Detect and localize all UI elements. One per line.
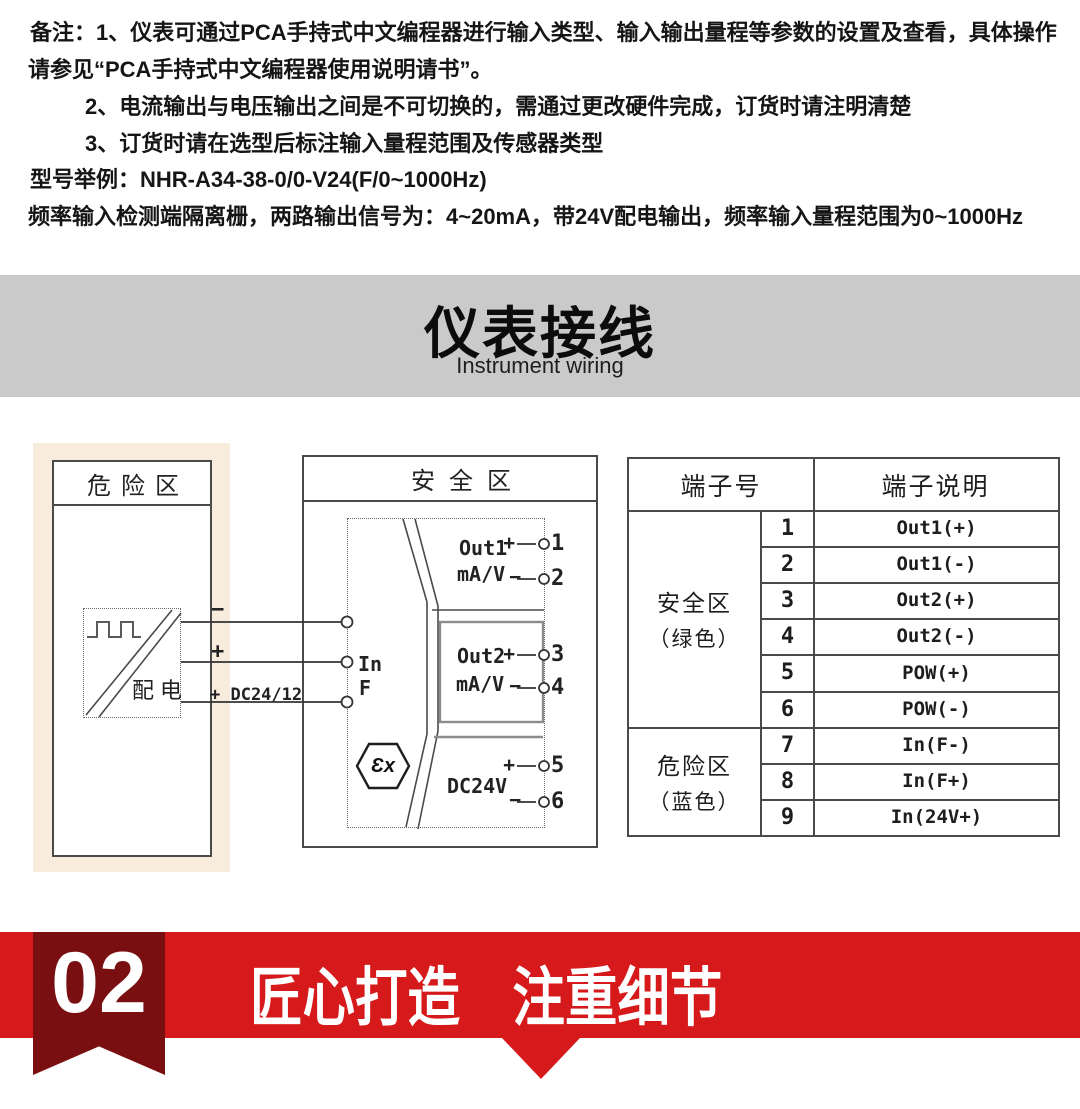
terminal-1-label: 1 (551, 533, 564, 555)
table-row-desc: POW(-) (815, 691, 1058, 727)
note-line-6-description: 频率输入检测端隔离栅，两路输出信号为：4~20mA，带24V配电输出，频率输入量… (28, 206, 1023, 228)
wire-power-label: + DC24/12V (210, 687, 312, 704)
out1-unit-label: mA/V (457, 564, 505, 584)
table-row-desc: POW(+) (815, 654, 1058, 691)
table-row-num: 9 (762, 799, 813, 835)
table-row-num: 1 (762, 510, 813, 546)
out1-label: Out1 (459, 538, 507, 558)
out1-plus-sign: + (503, 533, 515, 554)
out2-label: Out2 (457, 646, 505, 666)
product-page: 备注：1、仪表可通过PCA手持式中文编程器进行输入类型、输入输出量程等参数的设置… (0, 0, 1080, 1109)
hazard-zone-title: 危险区 (54, 462, 210, 506)
dc24v-label: DC24V (447, 776, 507, 796)
dc24v-minus-sign: − (509, 790, 521, 811)
group-hazard-line1: 危险区 (657, 747, 732, 781)
terminal-5-label: 5 (551, 755, 564, 777)
section-number: 02 (51, 940, 147, 1075)
safe-zone-title: 安全区 (304, 457, 596, 502)
terminal-table: 端子号 端子说明 安全区 （绿色） 危险区 （蓝色） 1 2 3 4 5 6 7… (627, 457, 1060, 837)
out2-plus-sign: + (503, 644, 515, 665)
table-header-terminal-desc: 端子说明 (813, 459, 1058, 510)
footer-slogan: 匠心打造 注重细节 (250, 947, 722, 1039)
section-banner: 仪表接线 Instrument wiring (0, 275, 1080, 397)
table-row-num: 6 (762, 691, 813, 727)
table-row-num: 8 (762, 763, 813, 799)
note-line-2: 请参见“PCA手持式中文编程器使用说明请书”。 (28, 59, 492, 81)
table-row-desc: Out2(+) (815, 582, 1058, 618)
ex-certification-label: Ɛx (361, 756, 405, 776)
table-row-desc: Out1(+) (815, 510, 1058, 546)
note-line-1: 备注：1、仪表可通过PCA手持式中文编程器进行输入类型、输入输出量程等参数的设置… (30, 22, 1057, 44)
out2-unit-label: mA/V (456, 674, 504, 694)
table-row-num: 3 (762, 582, 813, 618)
table-row-num: 7 (762, 727, 813, 763)
power-distribution-label: 配电 (132, 680, 188, 702)
note-line-4: 3、订货时请在选型后标注输入量程范围及传感器类型 (85, 133, 603, 155)
table-row-desc: Out2(-) (815, 618, 1058, 654)
table-row-desc: In(24V+) (815, 799, 1058, 835)
section-number-ribbon: 02 (33, 932, 165, 1075)
terminal-6-label: 6 (551, 791, 564, 813)
table-row-num: 2 (762, 546, 813, 582)
table-row-desc: In(F-) (815, 727, 1058, 763)
out1-minus-sign: − (509, 567, 521, 588)
group-safe-line2: （绿色） (649, 623, 741, 653)
out2-minus-sign: − (509, 676, 521, 697)
note-line-5-model-example: 型号举例：NHR-A34-38-0/0-V24(F/0~1000Hz) (30, 169, 487, 191)
terminal-4-label: 4 (551, 677, 564, 699)
wire-minus-label: − (211, 598, 224, 621)
table-row-num: 4 (762, 618, 813, 654)
section-subtitle: Instrument wiring (0, 353, 1080, 379)
table-row-desc: Out1(-) (815, 546, 1058, 582)
input-label: In (358, 654, 382, 674)
table-header-terminal-no: 端子号 (629, 459, 813, 510)
group-hazard-line2: （蓝色） (649, 786, 741, 816)
table-row-desc: In(F+) (815, 763, 1058, 799)
terminal-2-label: 2 (551, 568, 564, 590)
table-row-num: 5 (762, 654, 813, 691)
dc24v-plus-sign: + (503, 755, 515, 776)
group-safe-line1: 安全区 (657, 584, 732, 618)
table-group-safe-zone: 安全区 （绿色） (629, 510, 760, 727)
note-line-3: 2、电流输出与电压输出之间是不可切换的，需通过更改硬件完成，订货时请注明清楚 (85, 96, 911, 118)
table-group-hazard-zone: 危险区 （蓝色） (629, 727, 760, 835)
input-type-label: F (359, 678, 371, 698)
terminal-3-label: 3 (551, 644, 564, 666)
footer-banner-pointer (502, 1038, 580, 1079)
wire-plus-label: + (211, 640, 224, 663)
